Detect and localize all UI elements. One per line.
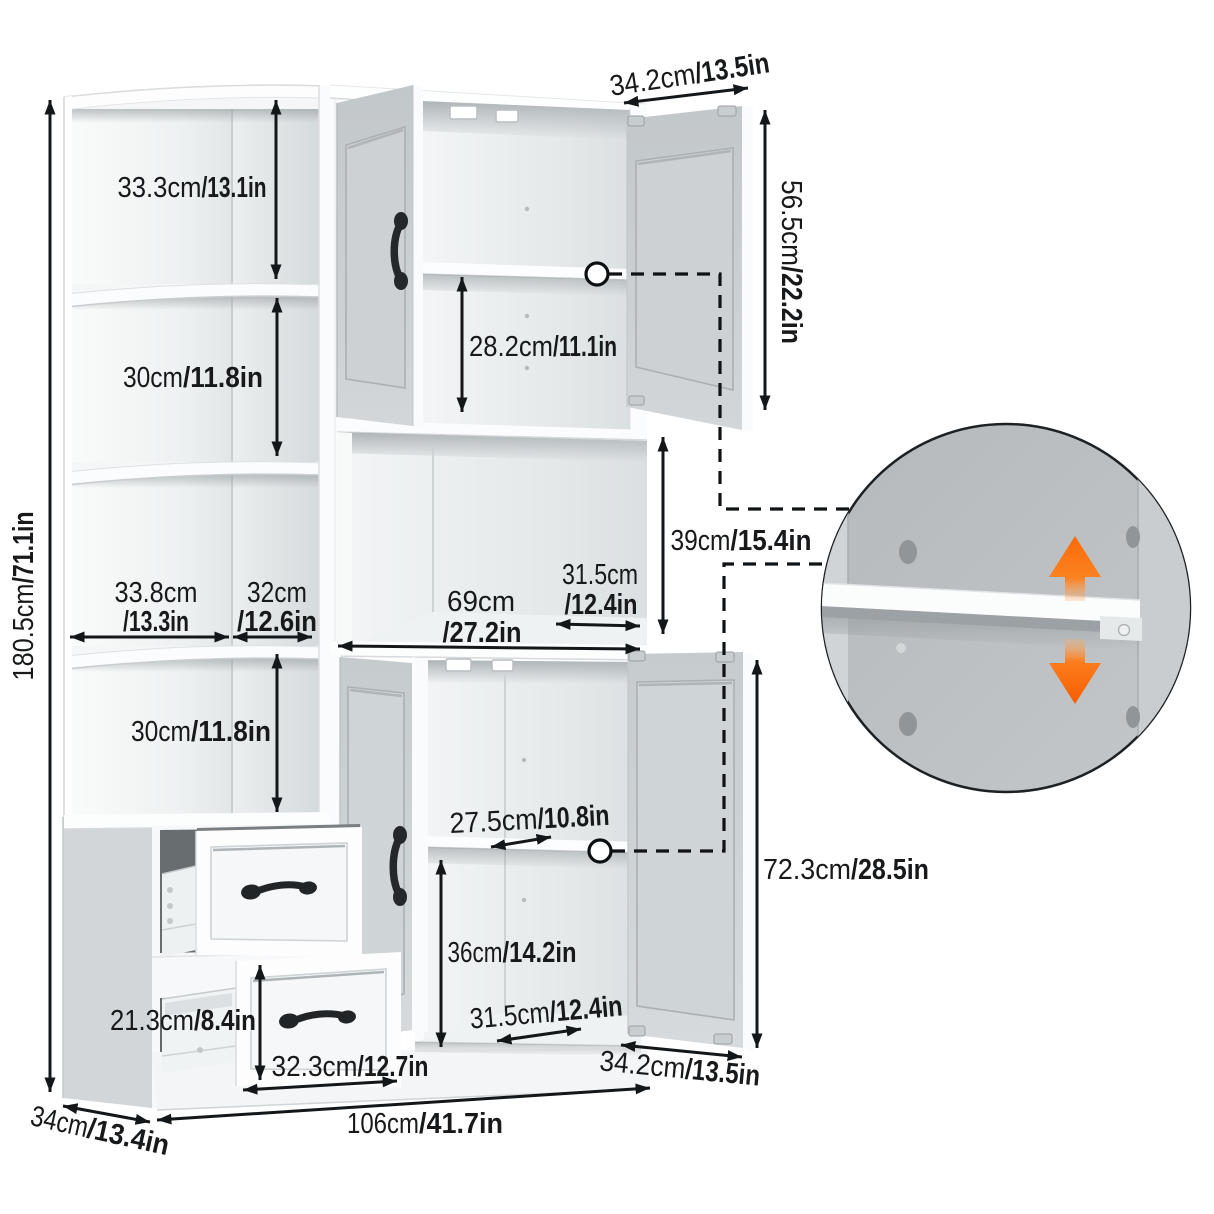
svg-text:33.3cm/13.1in: 33.3cm/13.1in [118, 172, 267, 204]
svg-text:28.2cm/11.1in: 28.2cm/11.1in [469, 331, 617, 363]
svg-text:39cm/15.4in: 39cm/15.4in [671, 525, 812, 557]
svg-text:/12.4in: /12.4in [565, 589, 638, 621]
svg-text:180.5cm/71.1in: 180.5cm/71.1in [8, 512, 40, 681]
svg-text:106cm/41.7in: 106cm/41.7in [347, 1108, 503, 1140]
svg-text:/13.3in: /13.3in [123, 606, 189, 638]
svg-text:56.5cm/22.2in: 56.5cm/22.2in [775, 180, 807, 344]
svg-text:36cm/14.2in: 36cm/14.2in [448, 937, 577, 969]
svg-text:30cm/11.8in: 30cm/11.8in [123, 362, 263, 394]
svg-text:30cm/11.8in: 30cm/11.8in [131, 716, 271, 748]
svg-text:69cm: 69cm [447, 586, 515, 618]
svg-text:32cm: 32cm [247, 577, 307, 609]
svg-text:72.3cm/28.5in: 72.3cm/28.5in [763, 854, 929, 886]
svg-text:31.5cm: 31.5cm [562, 559, 638, 591]
svg-text:32.3cm/12.7in: 32.3cm/12.7in [272, 1051, 429, 1083]
svg-text:/27.2in: /27.2in [443, 617, 522, 649]
svg-text:33.8cm: 33.8cm [115, 577, 198, 609]
svg-text:21.3cm/8.4in: 21.3cm/8.4in [110, 1005, 256, 1037]
svg-text:/12.6in: /12.6in [237, 606, 317, 638]
